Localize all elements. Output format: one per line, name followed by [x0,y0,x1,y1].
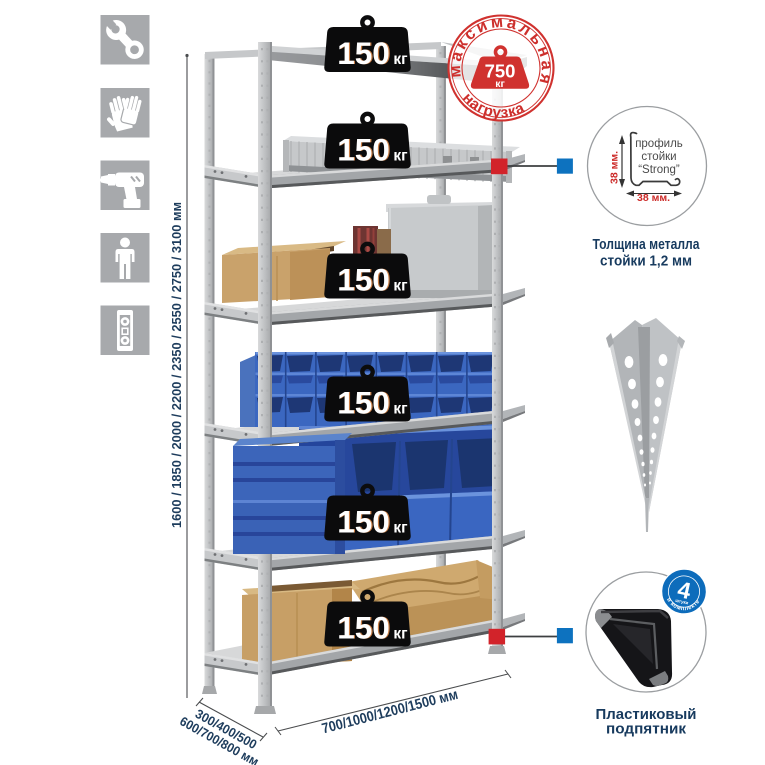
svg-text:кг: кг [393,51,408,68]
svg-text:кг: кг [495,78,505,90]
svg-text:кг: кг [393,148,408,165]
svg-text:150: 150 [337,262,390,298]
svg-text:1600 / 1850 / 2000 / 2200 / 23: 1600 / 1850 / 2000 / 2200 / 2350 / 2550 … [169,202,184,528]
svg-text:150: 150 [337,132,390,168]
svg-text:150: 150 [337,35,390,71]
svg-text:150: 150 [337,610,390,646]
svg-text:150: 150 [337,504,390,540]
svg-text:подпятник: подпятник [606,721,686,738]
svg-text:стойки 1,2 мм: стойки 1,2 мм [600,254,692,270]
svg-text:кг: кг [393,520,408,537]
svg-text:кг: кг [393,626,408,643]
svg-text:профиль: профиль [635,138,683,150]
svg-text:кг: кг [393,278,408,295]
svg-text:38 мм.: 38 мм. [609,151,621,184]
svg-text:кг: кг [393,401,408,418]
svg-text:150: 150 [337,385,390,421]
svg-text:Толщина металла: Толщина металла [593,237,701,253]
svg-text:“Strong”: “Strong” [638,164,680,176]
svg-text:38 мм.: 38 мм. [637,192,670,204]
svg-text:стойки: стойки [641,151,676,163]
svg-text:700/1000/1200/1500 мм: 700/1000/1200/1500 мм [320,687,460,738]
